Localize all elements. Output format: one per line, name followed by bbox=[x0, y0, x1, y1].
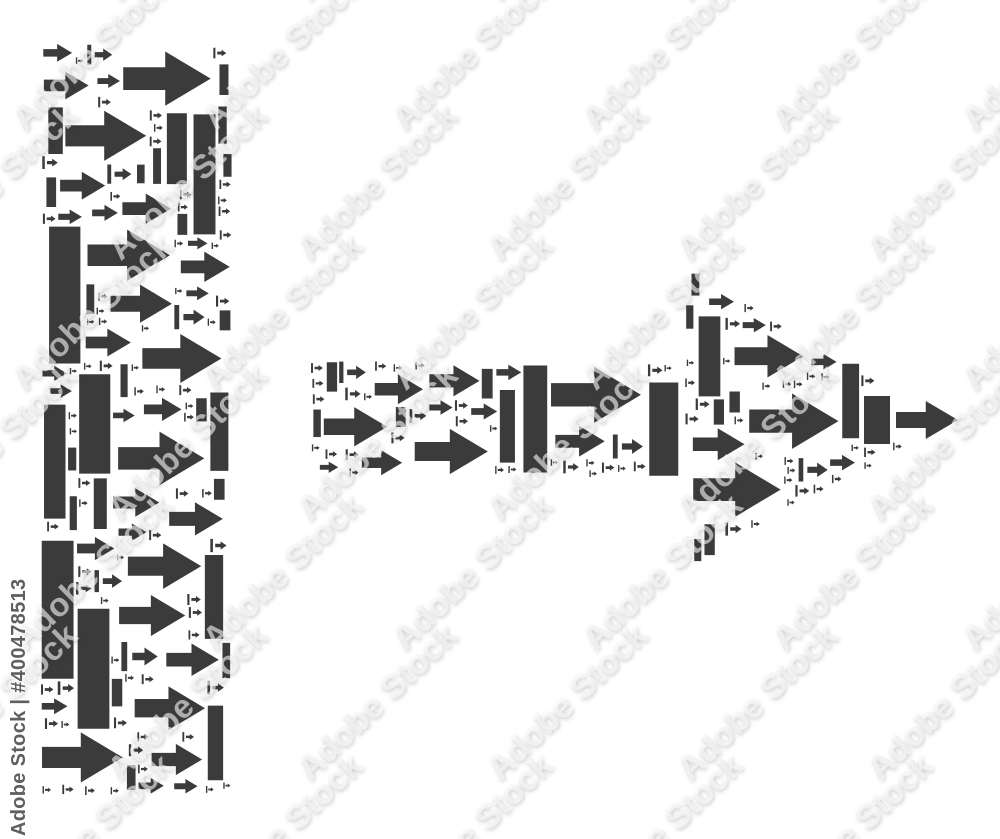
cursor-right-icon bbox=[223, 782, 230, 788]
cursor-right-icon bbox=[744, 304, 753, 312]
arrow-icon bbox=[113, 409, 135, 422]
arrow-icon bbox=[429, 400, 452, 414]
cursor-right-icon bbox=[648, 364, 663, 376]
cursor-right-icon bbox=[79, 499, 87, 506]
cursor-right-icon bbox=[98, 292, 107, 300]
bar-icon bbox=[219, 64, 228, 95]
cursor-right-icon bbox=[182, 732, 194, 742]
arrow-icon bbox=[166, 643, 218, 676]
cursor-right-icon bbox=[664, 365, 671, 371]
cursor-right-icon bbox=[696, 399, 710, 410]
cursor-right-icon bbox=[114, 718, 127, 729]
arrow-icon bbox=[128, 543, 201, 588]
cursor-right-icon bbox=[350, 468, 359, 476]
cursor-right-icon bbox=[391, 432, 404, 443]
cursor-right-icon bbox=[175, 288, 182, 294]
bar-icon bbox=[121, 364, 128, 397]
cursor-right-icon bbox=[100, 361, 113, 371]
arrow-icon bbox=[123, 52, 211, 106]
cursor-right-icon bbox=[685, 378, 695, 387]
cursor-right-icon bbox=[785, 457, 794, 465]
bar-icon bbox=[196, 398, 207, 421]
bar-icon bbox=[94, 478, 107, 529]
arrow-icon bbox=[43, 366, 67, 381]
arrow-icon bbox=[65, 111, 146, 161]
arrow-icon bbox=[119, 595, 185, 636]
cursor-right-icon bbox=[219, 207, 231, 216]
arrow-icon bbox=[471, 403, 497, 419]
cursor-right-icon bbox=[410, 409, 427, 423]
bar-icon bbox=[167, 113, 187, 184]
cursor-right-icon bbox=[142, 674, 154, 684]
bar-icon bbox=[222, 643, 230, 678]
cursor-right-icon bbox=[723, 358, 730, 364]
bar-icon bbox=[79, 374, 110, 473]
cursor-right-icon bbox=[206, 786, 214, 793]
arrow-icon bbox=[362, 450, 402, 475]
cursor-right-icon bbox=[85, 786, 95, 795]
cursor-right-icon bbox=[415, 362, 424, 370]
arrow-icon bbox=[693, 463, 780, 517]
cursor-right-icon bbox=[76, 57, 84, 64]
cursor-right-icon bbox=[613, 434, 643, 458]
cursor-right-icon bbox=[394, 364, 403, 371]
stock-image-preview: { "artwork": { "background_color": "#fff… bbox=[0, 0, 1000, 839]
cursor-right-icon bbox=[41, 684, 53, 694]
arrow-icon bbox=[896, 401, 958, 439]
bar-icon bbox=[864, 396, 890, 444]
cursor-right-icon bbox=[563, 461, 579, 474]
arrow-icon bbox=[186, 286, 208, 300]
cursor-right-icon bbox=[111, 787, 119, 794]
cursor-right-icon bbox=[132, 365, 139, 371]
cursor-right-icon bbox=[43, 786, 51, 793]
cursor-right-icon bbox=[508, 466, 516, 473]
arrow-icon bbox=[415, 429, 488, 474]
arrow-icon bbox=[111, 285, 172, 323]
cursor-right-icon bbox=[189, 607, 202, 618]
cursor-right-icon bbox=[346, 449, 359, 460]
cursor-right-icon bbox=[134, 387, 143, 395]
bar-icon bbox=[48, 107, 62, 154]
bar-icon bbox=[396, 407, 406, 427]
arrow-icon bbox=[97, 74, 120, 88]
arrow-icon bbox=[811, 354, 836, 370]
cursor-right-icon bbox=[864, 462, 871, 468]
cursor-right-icon bbox=[70, 428, 77, 434]
cursor-right-icon bbox=[218, 197, 227, 205]
bar-icon bbox=[86, 284, 94, 314]
bar-icon bbox=[482, 369, 493, 399]
bar-icon bbox=[729, 392, 739, 413]
cursor-right-icon bbox=[893, 443, 902, 451]
cursor-right-icon bbox=[97, 308, 105, 315]
cursor-right-icon bbox=[551, 459, 558, 466]
bar-icon bbox=[220, 310, 231, 330]
cursor-right-icon bbox=[212, 243, 219, 249]
arrow-icon bbox=[119, 524, 147, 541]
arrow-icon bbox=[324, 407, 387, 446]
arrow-icon bbox=[113, 488, 159, 517]
arrow-icon bbox=[375, 374, 423, 404]
cursor-right-icon bbox=[339, 362, 366, 383]
arrow-icon bbox=[735, 335, 804, 378]
arrow-icon bbox=[174, 779, 197, 793]
cursor-right-icon bbox=[70, 368, 77, 374]
cursor-right-icon bbox=[87, 45, 112, 65]
cursor-right-icon bbox=[47, 522, 59, 532]
arrow-icon bbox=[743, 318, 766, 332]
bar-icon bbox=[313, 410, 320, 438]
cursor-right-icon bbox=[814, 485, 824, 494]
cursor-right-icon bbox=[175, 240, 184, 248]
cursor-right-icon bbox=[799, 458, 828, 481]
bar-icon bbox=[842, 364, 859, 439]
bar-icon bbox=[153, 148, 161, 184]
cursor-right-icon bbox=[149, 530, 161, 540]
cursor-right-icon bbox=[121, 642, 157, 671]
cursor-right-icon bbox=[634, 462, 646, 472]
bar-icon bbox=[49, 227, 80, 364]
cursor-right-icon bbox=[326, 449, 338, 458]
cursor-right-icon bbox=[186, 403, 194, 410]
cursor-right-icon bbox=[107, 165, 131, 184]
cursor-right-icon bbox=[189, 630, 200, 639]
cursor-right-icon bbox=[795, 485, 809, 496]
cursor-right-icon bbox=[87, 319, 95, 326]
bar-icon bbox=[194, 114, 216, 234]
bar-icon bbox=[649, 383, 678, 476]
cursor-right-icon bbox=[137, 732, 148, 741]
cursor-right-icon bbox=[45, 718, 58, 729]
cursor-right-icon bbox=[180, 190, 191, 199]
cursor-right-icon bbox=[150, 137, 162, 147]
arrow-icon bbox=[122, 194, 171, 224]
arrow-icon bbox=[551, 367, 641, 423]
bar-icon bbox=[205, 555, 223, 639]
bar-icon bbox=[223, 154, 231, 177]
cursor-right-icon bbox=[794, 380, 803, 388]
cursor-right-icon bbox=[62, 785, 73, 794]
cursor-right-icon bbox=[98, 97, 111, 107]
bar-icon bbox=[523, 366, 547, 473]
cursor-right-icon bbox=[78, 478, 90, 488]
cursor-right-icon bbox=[312, 444, 320, 451]
cursor-right-icon bbox=[42, 156, 58, 169]
cursor-right-icon bbox=[762, 383, 770, 390]
arrow-icon bbox=[42, 732, 123, 782]
arrow-icon bbox=[43, 44, 72, 62]
arrow-icon bbox=[188, 237, 208, 249]
arrow-icon bbox=[88, 230, 170, 281]
cursor-right-icon bbox=[111, 657, 119, 664]
arrow-icon bbox=[709, 294, 734, 309]
arrow-icon bbox=[142, 334, 221, 383]
cursor-right-icon bbox=[125, 674, 134, 682]
cursor-right-icon bbox=[110, 192, 120, 201]
bar-icon bbox=[46, 177, 56, 207]
bar-icon bbox=[714, 399, 724, 424]
cursor-right-icon bbox=[69, 412, 77, 419]
cursor-right-icon bbox=[219, 180, 230, 189]
cursor-right-icon bbox=[117, 554, 124, 560]
cursor-right-icon bbox=[821, 373, 829, 380]
cursor-right-icon bbox=[589, 470, 597, 477]
bar-icon bbox=[177, 214, 187, 235]
bar-icon bbox=[210, 393, 228, 471]
vertical-bar-mosaic bbox=[41, 44, 232, 795]
arrow-icon bbox=[181, 252, 230, 282]
cursor-right-icon bbox=[495, 466, 504, 474]
cursor-right-icon bbox=[852, 445, 859, 451]
cursor-right-icon bbox=[154, 124, 163, 132]
cursor-right-icon bbox=[58, 681, 74, 694]
cursor-right-arrow-mosaic bbox=[0, 0, 1000, 839]
cursor-right-icon bbox=[78, 566, 91, 577]
cursor-right-icon bbox=[142, 325, 149, 331]
arrow-icon bbox=[144, 398, 182, 421]
cursor-right-icon bbox=[176, 488, 189, 498]
adobe-stock-id-watermark: Adobe Stock | #400478513 bbox=[8, 579, 31, 836]
cursor-right-icon bbox=[864, 448, 875, 457]
cursor-right-icon bbox=[216, 296, 229, 307]
cursor-right-icon bbox=[687, 360, 694, 366]
cursor-right-icon bbox=[490, 425, 497, 432]
cursor-right-icon bbox=[43, 214, 56, 224]
bar-icon bbox=[127, 765, 136, 790]
cursor-right-icon bbox=[61, 721, 69, 728]
bar-icon bbox=[327, 362, 337, 391]
bar-icon bbox=[137, 165, 145, 184]
cursor-right-icon bbox=[99, 318, 107, 325]
cursor-right-icon bbox=[770, 322, 782, 332]
cursor-right-icon bbox=[174, 305, 204, 329]
cursor-right-icon bbox=[84, 363, 92, 370]
cursor-right-icon bbox=[207, 681, 223, 695]
cursor-right-icon bbox=[312, 379, 323, 388]
cursor-right-icon bbox=[861, 375, 874, 386]
arrow-icon bbox=[749, 394, 838, 449]
bar-icon bbox=[686, 305, 693, 328]
cursor-right-icon bbox=[783, 381, 791, 388]
cursor-right-icon bbox=[618, 465, 626, 472]
bar-icon bbox=[694, 539, 701, 561]
cursor-right-icon bbox=[179, 385, 191, 395]
arrow-icon bbox=[58, 210, 82, 225]
arrow-icon bbox=[555, 426, 604, 457]
cursor-right-icon bbox=[755, 453, 762, 460]
cursor-right-icon bbox=[751, 520, 759, 527]
cursor-right-icon bbox=[345, 388, 360, 401]
cursor-right-icon bbox=[313, 394, 325, 403]
arrow-icon bbox=[830, 455, 855, 470]
bar-icon bbox=[78, 609, 110, 729]
bar-icon bbox=[42, 541, 74, 679]
arrow-icon bbox=[169, 502, 223, 535]
arrow-icon bbox=[429, 365, 479, 396]
cursor-right-icon bbox=[95, 570, 122, 592]
cursor-right-icon bbox=[787, 499, 794, 505]
bar-icon bbox=[112, 679, 122, 707]
cursor-right-icon bbox=[832, 475, 841, 483]
bar-icon bbox=[70, 496, 77, 530]
cursor-right-icon bbox=[807, 373, 815, 380]
cursor-right-icon bbox=[76, 582, 91, 595]
cursor-right-icon bbox=[586, 459, 594, 466]
cursor-right-icon bbox=[735, 416, 744, 424]
cursor-right-icon bbox=[311, 363, 323, 373]
arrow-icon bbox=[320, 462, 338, 473]
arrow-icon bbox=[152, 744, 203, 775]
right-arrow-mosaic bbox=[311, 274, 958, 561]
cursor-right-icon bbox=[686, 414, 699, 425]
cursor-right-icon bbox=[150, 110, 162, 120]
cursor-right-icon bbox=[184, 413, 194, 422]
cursor-right-icon bbox=[178, 203, 188, 212]
cursor-right-icon bbox=[220, 230, 232, 239]
cursor-right-icon bbox=[213, 48, 226, 59]
arrow-icon bbox=[50, 384, 71, 397]
bar-icon bbox=[214, 479, 225, 500]
cursor-right-icon bbox=[602, 463, 614, 473]
bar-icon bbox=[704, 524, 714, 555]
arrow-icon bbox=[496, 365, 521, 380]
cursor-right-icon bbox=[208, 319, 216, 326]
cursor-right-icon bbox=[156, 386, 165, 394]
arrow-icon bbox=[135, 686, 205, 730]
image-canvas: Adobe StockAdobe StockAdobe StockAdobe S… bbox=[0, 0, 1000, 839]
bar-icon bbox=[692, 274, 700, 296]
arrow-icon bbox=[86, 329, 131, 357]
arrow-icon bbox=[42, 698, 68, 714]
cursor-right-icon bbox=[101, 597, 109, 604]
cursor-right-icon bbox=[375, 362, 386, 371]
cursor-right-icon bbox=[364, 393, 372, 400]
bar-icon bbox=[500, 390, 515, 463]
cursor-right-icon bbox=[138, 765, 148, 774]
bar-icon bbox=[699, 316, 721, 396]
arrow-icon bbox=[77, 537, 114, 560]
cursor-right-icon bbox=[787, 467, 795, 474]
bar-icon bbox=[218, 106, 226, 143]
bar-icon bbox=[44, 405, 65, 519]
arrow-icon bbox=[92, 205, 118, 221]
arrow-icon bbox=[139, 778, 164, 794]
cursor-right-icon bbox=[725, 522, 741, 535]
cursor-right-icon bbox=[129, 744, 143, 756]
bar-icon bbox=[208, 706, 223, 781]
arrow-icon bbox=[118, 432, 204, 485]
arrow-icon bbox=[693, 428, 745, 460]
cursor-right-icon bbox=[455, 400, 468, 411]
cursor-right-icon bbox=[210, 539, 226, 552]
bar-icon bbox=[68, 448, 76, 471]
cursor-right-icon bbox=[202, 489, 212, 498]
cursor-right-icon bbox=[726, 318, 741, 330]
cursor-right-icon bbox=[187, 594, 201, 605]
arrow-icon bbox=[60, 172, 105, 200]
cursor-right-icon bbox=[456, 416, 468, 426]
arrow-icon bbox=[44, 72, 89, 100]
cursor-right-icon bbox=[784, 476, 792, 483]
